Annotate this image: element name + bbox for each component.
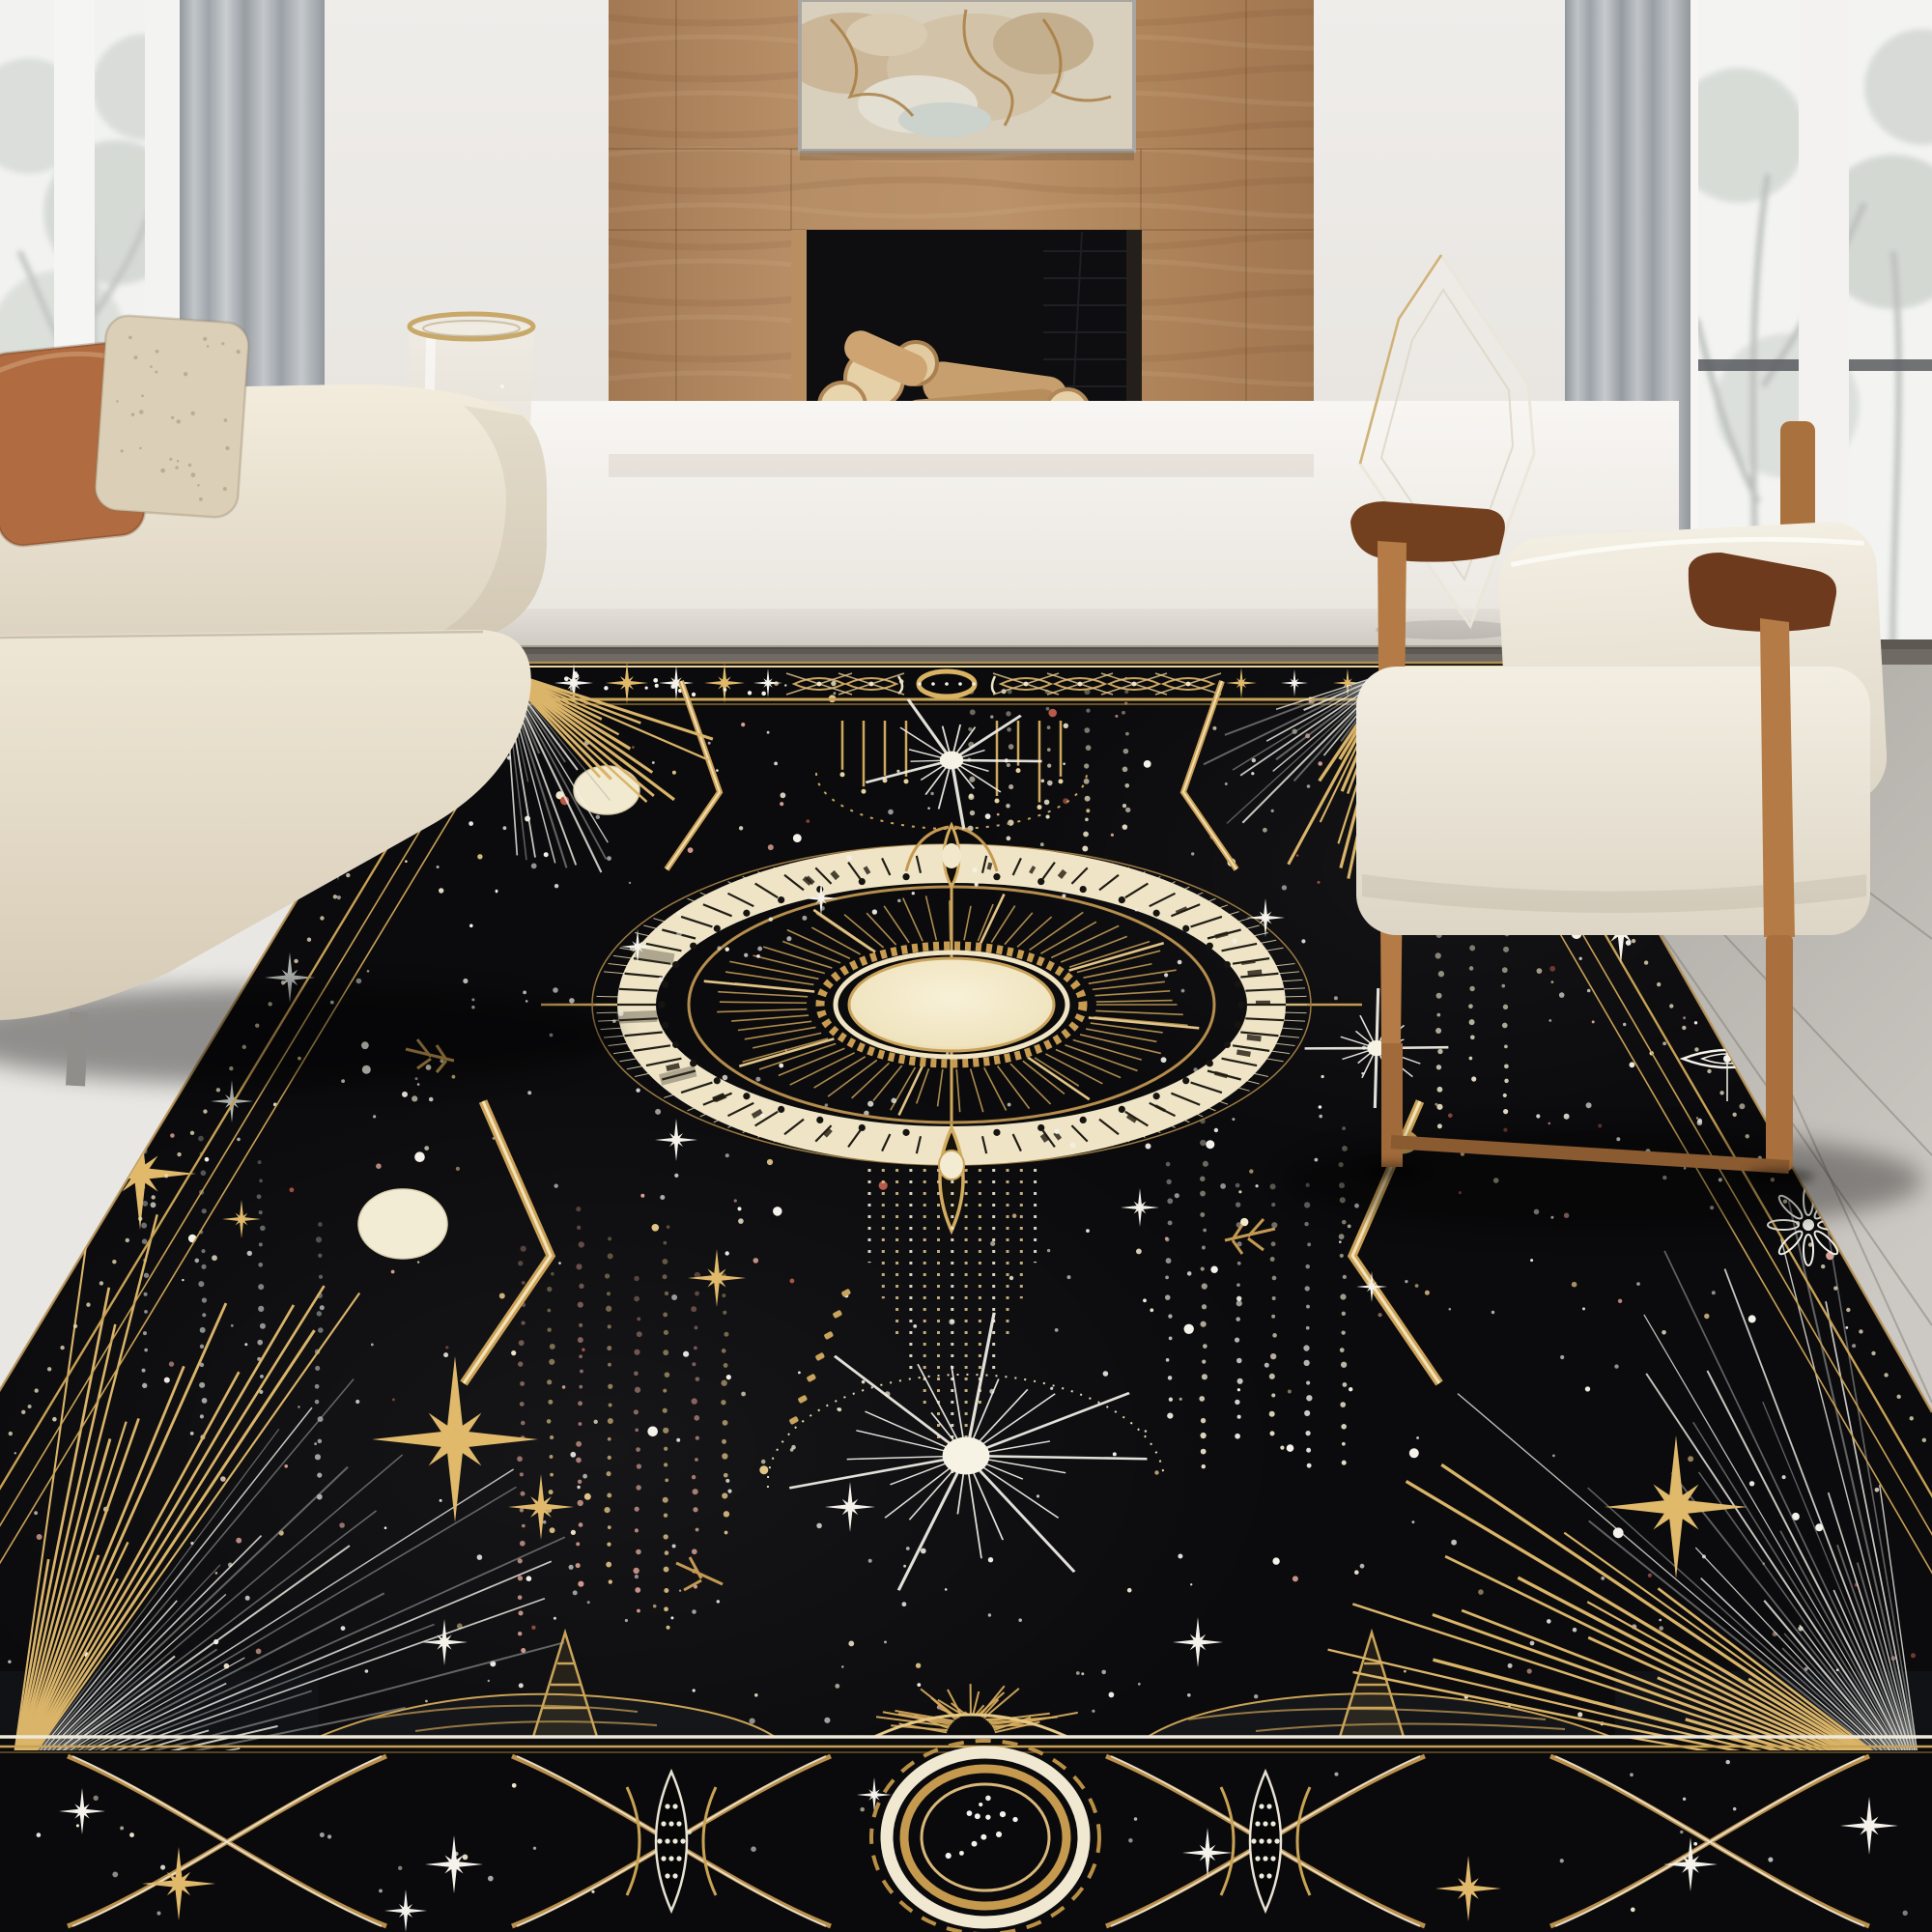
chair-armrest-left [1350,501,1505,562]
sun-center-disc [849,958,1054,1051]
sofa-leg [66,1012,89,1087]
rug-bottom-band [0,1737,1932,1932]
moon-large [358,1189,447,1259]
pillow-boucle [94,314,250,519]
chair-support-right [1760,618,1795,937]
chair-front-leg-right [1766,935,1793,1171]
scene-canvas [0,0,1932,1932]
armchair-shadow [1285,1130,1922,1231]
living-room-photo [0,0,1932,1932]
artwork [782,0,1134,160]
